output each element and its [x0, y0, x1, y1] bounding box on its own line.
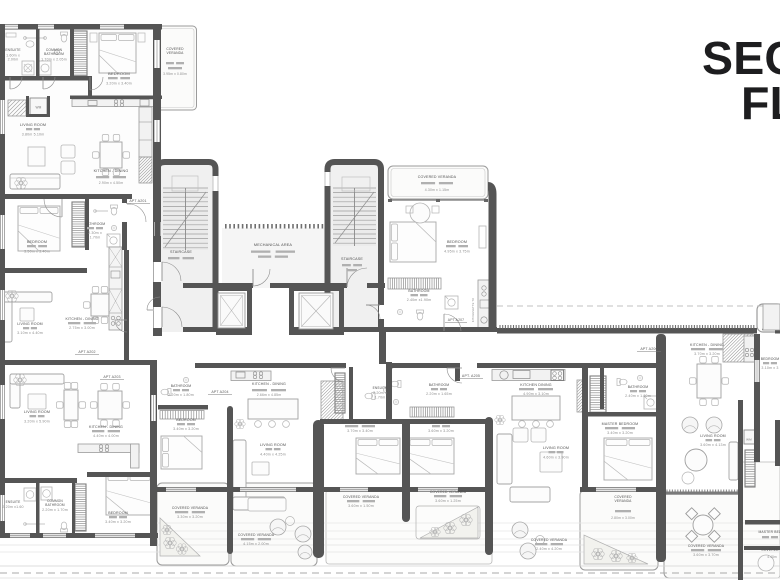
- svg-text:BATHROOM: BATHROOM: [44, 52, 64, 56]
- svg-text:3.20m x 5.90m: 3.20m x 5.90m: [24, 419, 50, 423]
- svg-text:4.15m x 2.00m: 4.15m x 2.00m: [243, 542, 269, 546]
- svg-text:2.30m x: 2.30m x: [88, 231, 102, 235]
- svg-text:WM: WM: [36, 106, 42, 110]
- svg-text:VERANDA: VERANDA: [615, 499, 633, 503]
- svg-text:BEDROOM: BEDROOM: [447, 240, 467, 244]
- svg-text:MASTER BED: MASTER BED: [759, 530, 780, 534]
- svg-text:STAIRCASE: STAIRCASE: [341, 257, 363, 261]
- svg-text:BATHROOM: BATHROOM: [628, 385, 649, 389]
- svg-text:STAIRCASE: STAIRCASE: [170, 250, 192, 254]
- svg-text:4.95m x 3.75m: 4.95m x 3.75m: [444, 249, 470, 253]
- svg-text:COVERED VERANDA: COVERED VERANDA: [418, 175, 457, 179]
- svg-text:KITCHEN DINING: KITCHEN DINING: [520, 383, 552, 387]
- svg-text:BEDROOM: BEDROOM: [761, 357, 780, 361]
- svg-text:APT. A205: APT. A205: [462, 374, 480, 378]
- svg-text:BATHROOM: BATHROOM: [171, 384, 192, 388]
- svg-text:3.70m x 3.20m: 3.70m x 3.20m: [694, 352, 720, 356]
- svg-text:3.50m x 3.40m: 3.50m x 3.40m: [24, 249, 50, 253]
- svg-text:2.20m x1.60: 2.20m x1.60: [2, 505, 23, 509]
- svg-text:LIVING ROOM: LIVING ROOM: [543, 446, 569, 450]
- svg-text:APT A204: APT A204: [211, 390, 228, 394]
- svg-text:KITCHEN - DINING: KITCHEN - DINING: [65, 317, 98, 321]
- svg-text:1.70m x 2.05m: 1.70m x 2.05m: [41, 57, 67, 61]
- svg-text:3.95m x 0.80m: 3.95m x 0.80m: [163, 72, 187, 76]
- svg-text:LIVING ROOM: LIVING ROOM: [260, 443, 286, 447]
- svg-text:COVERED VERANDA: COVERED VERANDA: [531, 538, 568, 542]
- svg-text:4.30m x 1.15m: 4.30m x 1.15m: [425, 188, 449, 192]
- svg-text:LIVING ROOM: LIVING ROOM: [20, 123, 46, 127]
- svg-text:BATHROOM: BATHROOM: [45, 503, 65, 507]
- svg-text:KITCHENETTE TO: KITCHENETTE TO: [471, 298, 475, 322]
- svg-text:2.40m x 1.80m: 2.40m x 1.80m: [625, 394, 651, 398]
- svg-text:VERANDA: VERANDA: [167, 51, 185, 55]
- svg-text:3.20m x 3.40m: 3.20m x 3.40m: [106, 82, 132, 86]
- svg-text:3.60m x 4.13m: 3.60m x 4.13m: [700, 443, 726, 447]
- svg-text:KITCHEN - DINING: KITCHEN - DINING: [690, 343, 724, 347]
- svg-text:1.70m: 1.70m: [375, 396, 386, 400]
- svg-text:3.40m x 3.20m: 3.40m x 3.20m: [607, 431, 633, 435]
- svg-text:ENSUITE: ENSUITE: [373, 386, 388, 390]
- svg-text:APT A202: APT A202: [78, 350, 95, 354]
- svg-text:1.70m: 1.70m: [90, 235, 101, 239]
- svg-text:APT A203: APT A203: [103, 375, 120, 379]
- svg-text:3.60m x 1.50m: 3.60m x 1.50m: [348, 504, 374, 508]
- svg-text:2.00m: 2.00m: [8, 58, 19, 62]
- svg-text:ENSUITE: ENSUITE: [5, 48, 21, 52]
- svg-text:COVERED VERANDA: COVERED VERANDA: [688, 544, 725, 548]
- svg-text:ENSUITE: ENSUITE: [6, 500, 21, 504]
- svg-text:BATHROOM: BATHROOM: [85, 222, 106, 226]
- svg-text:LIVING ROOM: LIVING ROOM: [700, 434, 726, 438]
- svg-text:KITCHEN - DINING: KITCHEN - DINING: [252, 382, 286, 386]
- svg-text:APT A206: APT A206: [640, 347, 657, 351]
- svg-text:WM: WM: [746, 438, 752, 442]
- svg-text:KITCHEN - DINING: KITCHEN - DINING: [94, 169, 129, 173]
- svg-text:2.75m x 3.00m: 2.75m x 3.00m: [69, 326, 95, 330]
- svg-text:BATHROOM: BATHROOM: [429, 383, 450, 387]
- svg-text:MASTER BEDROOM: MASTER BEDROOM: [602, 422, 639, 426]
- svg-text:3.60m x 1.25m: 3.60m x 1.25m: [435, 499, 461, 503]
- svg-text:APT A207: APT A207: [448, 318, 464, 322]
- svg-text:4.45m: 4.45m: [767, 555, 777, 559]
- svg-text:3.80m 5.10m: 3.80m 5.10m: [22, 132, 45, 136]
- svg-text:2.40m x1.90m: 2.40m x1.90m: [407, 298, 432, 302]
- svg-text:APT A201: APT A201: [129, 199, 146, 203]
- svg-text:COVERED VERANDA: COVERED VERANDA: [172, 506, 209, 510]
- svg-text:BEDROOM: BEDROOM: [108, 71, 130, 76]
- svg-text:2.90m x 4.50m: 2.90m x 4.50m: [99, 181, 123, 185]
- svg-text:MECHANICAL AREA: MECHANICAL AREA: [254, 243, 293, 247]
- svg-text:4.90m x 3.10m: 4.90m x 3.10m: [523, 392, 549, 396]
- svg-text:4.40m x 4.00m: 4.40m x 4.00m: [93, 434, 119, 438]
- svg-text:2.40m x 4.20m: 2.40m x 4.20m: [536, 547, 562, 551]
- svg-text:BATHROOM: BATHROOM: [408, 289, 429, 293]
- svg-text:3.70m x 3.40m: 3.70m x 3.40m: [347, 429, 373, 433]
- svg-text:LIVING ROOM: LIVING ROOM: [17, 322, 43, 326]
- svg-text:MASTER BEDROOM: MASTER BEDROOM: [342, 420, 379, 424]
- svg-text:3.60m x 3.70m: 3.60m x 3.70m: [693, 553, 719, 557]
- svg-text:2.20m x 1.70m: 2.20m x 1.70m: [42, 508, 68, 512]
- svg-text:BEDROOM: BEDROOM: [176, 418, 196, 422]
- svg-text:COVERED VERANDA: COVERED VERANDA: [238, 533, 275, 537]
- svg-text:4.40m x 4.25m: 4.40m x 4.25m: [260, 452, 286, 456]
- svg-text:4.60m x 3.90m: 4.60m x 3.90m: [543, 455, 569, 459]
- svg-text:2.66m x 4.85m: 2.66m x 4.85m: [257, 393, 281, 397]
- svg-text:BEDROOM: BEDROOM: [108, 511, 128, 515]
- svg-text:3.10m x 3: 3.10m x 3: [761, 366, 778, 370]
- svg-text:COVERED: COVERED: [761, 548, 779, 552]
- svg-text:3.10m x 4.40m: 3.10m x 4.40m: [17, 331, 43, 335]
- svg-text:2.20m x 1.80m: 2.20m x 1.80m: [168, 393, 194, 397]
- svg-text:3.60m x 3.20m: 3.60m x 3.20m: [428, 429, 454, 433]
- svg-text:COVERED VERANDA: COVERED VERANDA: [343, 495, 380, 499]
- svg-text:3.40m x 3.20m: 3.40m x 3.20m: [105, 520, 131, 524]
- svg-text:COVERED VERANDA: COVERED VERANDA: [430, 490, 467, 494]
- svg-text:3.40m x 3.20m: 3.40m x 3.20m: [173, 427, 199, 431]
- svg-text:LIVING ROOM: LIVING ROOM: [24, 410, 50, 414]
- svg-text:2.80m x 3.00m: 2.80m x 3.00m: [611, 516, 635, 520]
- svg-text:BEDROOM: BEDROOM: [431, 420, 451, 424]
- svg-text:BEDROOM: BEDROOM: [27, 240, 47, 244]
- svg-text:KITCHEN - DINING: KITCHEN - DINING: [89, 425, 123, 429]
- svg-text:2.20m x 1.65m: 2.20m x 1.65m: [426, 392, 452, 396]
- svg-text:2.20m x: 2.20m x: [373, 391, 387, 395]
- svg-text:FLOOR: FLOOR: [741, 77, 780, 129]
- svg-text:1.60m x: 1.60m x: [6, 53, 20, 57]
- svg-text:3.30m x 3.20m: 3.30m x 3.20m: [177, 515, 203, 519]
